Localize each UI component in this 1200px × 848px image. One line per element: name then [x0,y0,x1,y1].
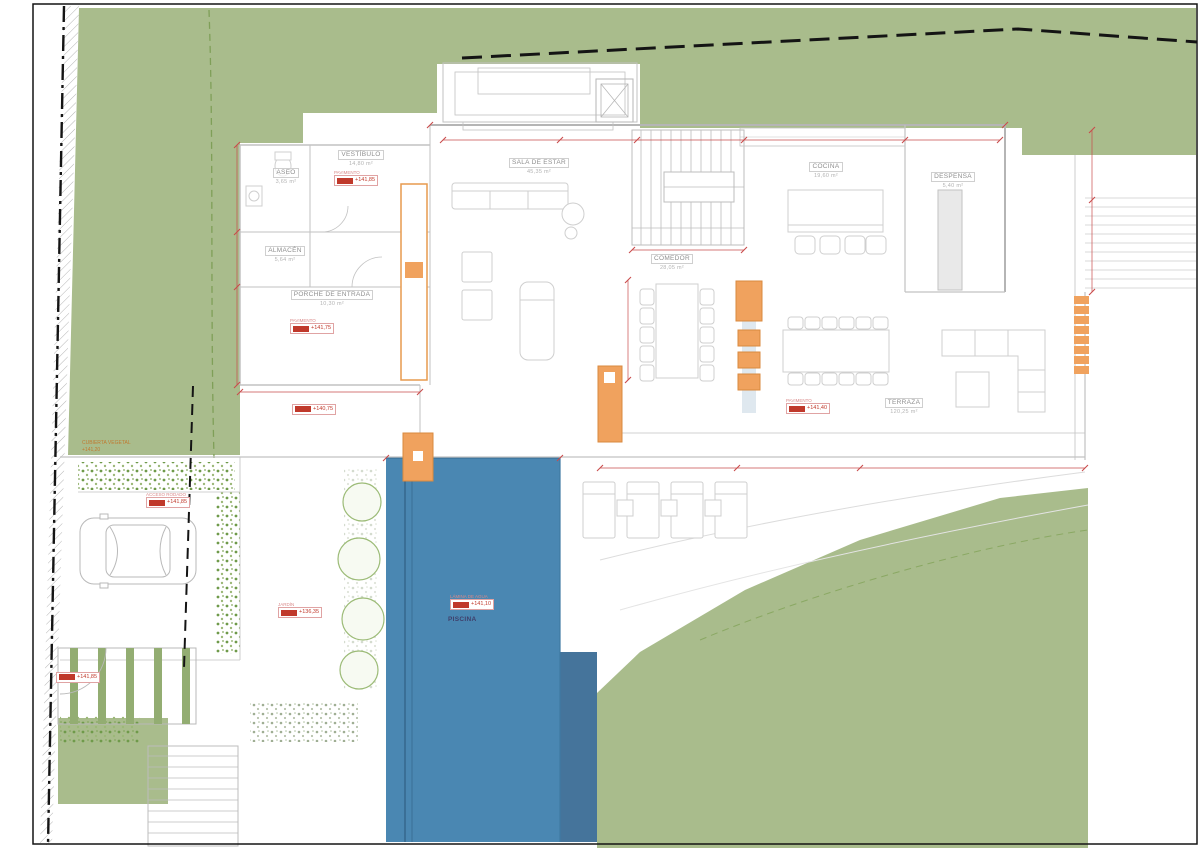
level-chip [59,674,75,680]
level-chip [293,326,309,332]
level-chip [337,178,353,184]
room-label-vestibulo: VESTÍBULO 14,80 m² [326,150,396,168]
level-marker-vestibulo: PAVIMENTO +141,85 [334,170,378,186]
floor-plan-sheet: ASEO 3,65 m² VESTÍBULO 14,80 m² ALMACÉN … [0,0,1200,848]
level-marker-terraza: PAVIMENTO +141,40 [786,398,830,414]
level-marker-exterior: +140,75 [292,404,336,415]
room-label-cocina: COCINA 19,60 m² [800,162,852,180]
level-marker-porche: PAVIMENTO +141,75 [290,318,334,334]
level-chip [453,602,469,608]
level-chip [281,610,297,616]
level-marker-piscina: LÁMINA DE AGUA +141,10 [450,594,494,610]
level-marker-acceso: ACCESO RODADO +141,85 [146,492,190,508]
level-marker-jardin: JARDÍN +136,35 [278,602,322,618]
room-label-sala-de-estar: SALA DE ESTAR 45,35 m² [500,158,578,176]
level-chip [149,500,165,506]
level-chip [295,406,311,412]
room-label-despensa: DESPENSA 5,40 m² [922,172,984,190]
room-label-piscina: PISCINA [446,616,502,624]
level-chip [789,406,805,412]
labels-overlay: ASEO 3,65 m² VESTÍBULO 14,80 m² ALMACÉN … [0,0,1200,848]
level-marker-pergola: +141,85 [56,672,100,683]
room-label-aseo: ASEO 3,65 m² [260,168,312,186]
room-label-comedor: COMEDOR 28,05 m² [640,254,704,272]
room-label-terraza: TERRAZA 120,25 m² [874,398,934,416]
room-label-almacen: ALMACÉN 5,64 m² [256,246,314,264]
green-roof-note: CUBIERTA VEGETAL +141,20 [82,440,131,453]
room-label-porche: PORCHE DE ENTRADA 10,30 m² [284,290,380,308]
